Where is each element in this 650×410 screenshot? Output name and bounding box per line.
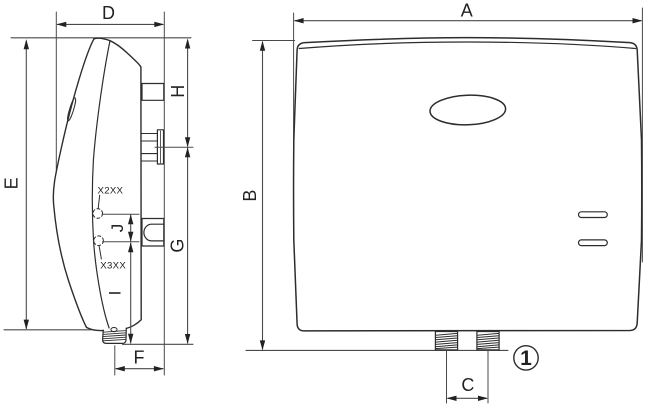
svg-text:C: C <box>461 375 474 395</box>
svg-text:I: I <box>105 291 124 296</box>
svg-text:J: J <box>108 224 127 233</box>
svg-text:1: 1 <box>520 347 532 370</box>
svg-text:G: G <box>167 239 187 253</box>
svg-text:X3XX: X3XX <box>100 261 126 272</box>
svg-text:F: F <box>134 347 145 367</box>
svg-text:E: E <box>2 177 22 189</box>
svg-text:X2XX: X2XX <box>98 185 124 196</box>
svg-text:D: D <box>102 3 115 23</box>
svg-text:B: B <box>240 190 260 202</box>
svg-text:H: H <box>168 85 188 98</box>
svg-text:A: A <box>461 1 473 21</box>
